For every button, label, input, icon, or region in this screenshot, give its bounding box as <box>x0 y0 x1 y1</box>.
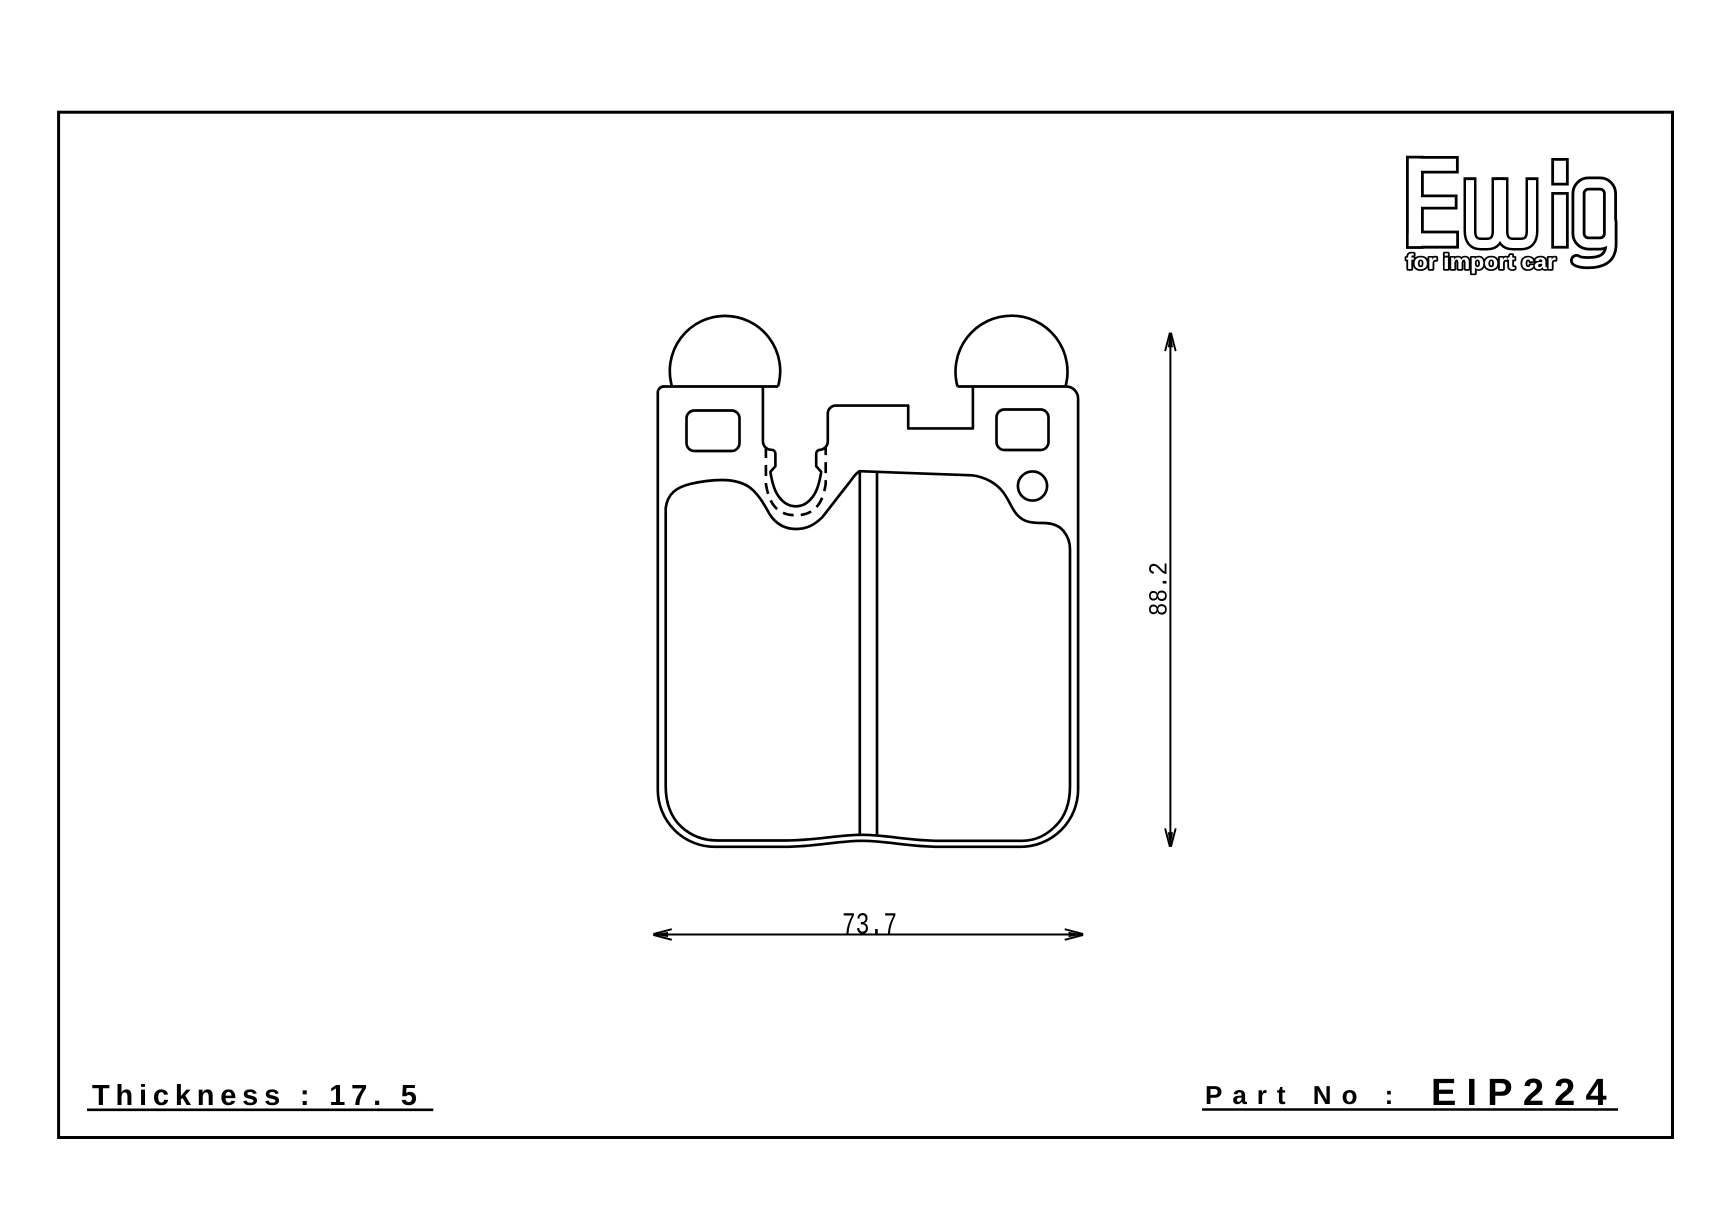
svg-text:73.7: 73.7 <box>842 909 897 944</box>
svg-text:Thickness : 17. 5: Thickness : 17. 5 <box>92 1080 423 1112</box>
svg-text:EIP224: EIP224 <box>1431 1072 1617 1114</box>
svg-text:88.2: 88.2 <box>1146 562 1175 616</box>
svg-text:for import car: for import car <box>1406 250 1557 274</box>
svg-text:Part No :: Part No : <box>1205 1080 1403 1110</box>
